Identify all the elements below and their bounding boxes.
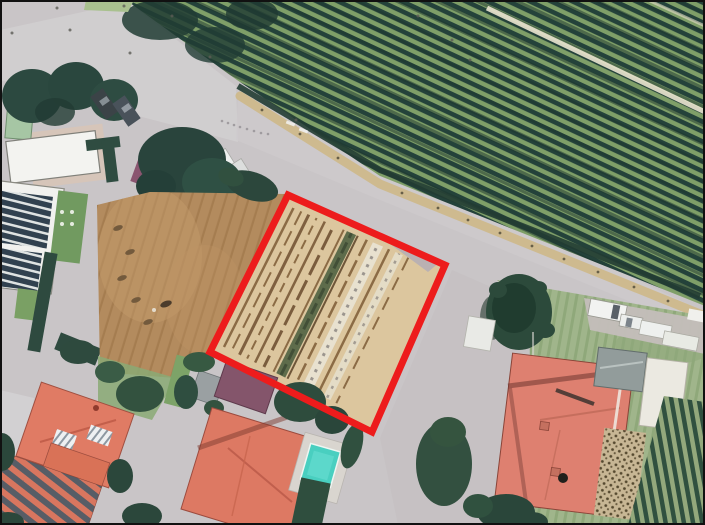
shed-white-right	[464, 316, 496, 351]
fence-post	[299, 133, 302, 136]
vineyard-dense-trees-2	[185, 27, 245, 63]
lawn-dot	[60, 222, 64, 226]
tree	[60, 340, 96, 364]
round-tree-lobe	[489, 282, 507, 298]
tree	[95, 361, 125, 383]
fence-post	[337, 157, 340, 160]
aerial-photo	[0, 0, 705, 525]
road-mark	[69, 29, 72, 32]
building-gray-br	[594, 347, 647, 392]
road-mark	[295, 119, 298, 122]
roof-vent	[540, 421, 550, 430]
road-mark	[56, 7, 59, 10]
solar-array-lower	[0, 247, 42, 291]
street-label-smudge	[253, 130, 256, 133]
vineyard-dense-trees-1	[122, 0, 198, 40]
tree-row-tl-shadow	[35, 98, 75, 126]
road-mark	[123, 5, 126, 8]
street-label-smudge	[267, 133, 270, 136]
fence-post	[401, 192, 404, 195]
road-mark	[171, 15, 174, 18]
road-mark	[451, 39, 454, 42]
tree-road-2	[430, 417, 466, 447]
lawn-dot	[60, 210, 64, 214]
round-tree-lobe	[529, 281, 547, 295]
fence-post	[437, 207, 440, 210]
road-mark	[469, 59, 472, 62]
fence-post	[261, 109, 264, 112]
street-label-smudge	[246, 128, 249, 131]
fence-post	[563, 258, 566, 261]
tree	[116, 376, 164, 412]
aerial-photo-canvas	[0, 0, 705, 525]
fence-post	[531, 245, 534, 248]
tree	[463, 494, 493, 518]
fence-post	[633, 286, 636, 289]
chimney	[93, 405, 99, 411]
street-label-smudge	[233, 124, 236, 127]
road-mark	[417, 15, 420, 18]
street-label-smudge	[227, 122, 230, 125]
street-label-smudge	[239, 126, 242, 129]
lawn-dot	[70, 210, 74, 214]
road-mark	[209, 56, 212, 59]
lawn-dot	[70, 222, 74, 226]
road-mark	[129, 52, 132, 55]
tree	[107, 459, 133, 493]
tree	[174, 375, 198, 409]
round-tree-lobe	[535, 322, 555, 338]
fence-post	[667, 300, 670, 303]
roof-dark-dot	[558, 473, 568, 483]
fence-post	[499, 232, 502, 235]
fence-post	[467, 219, 470, 222]
street-label-smudge	[260, 132, 263, 135]
solar-array-upper	[0, 190, 53, 249]
fence-post	[597, 271, 600, 274]
road-mark	[11, 32, 14, 35]
field-white-blob	[152, 308, 156, 312]
street-label-smudge	[221, 120, 224, 123]
